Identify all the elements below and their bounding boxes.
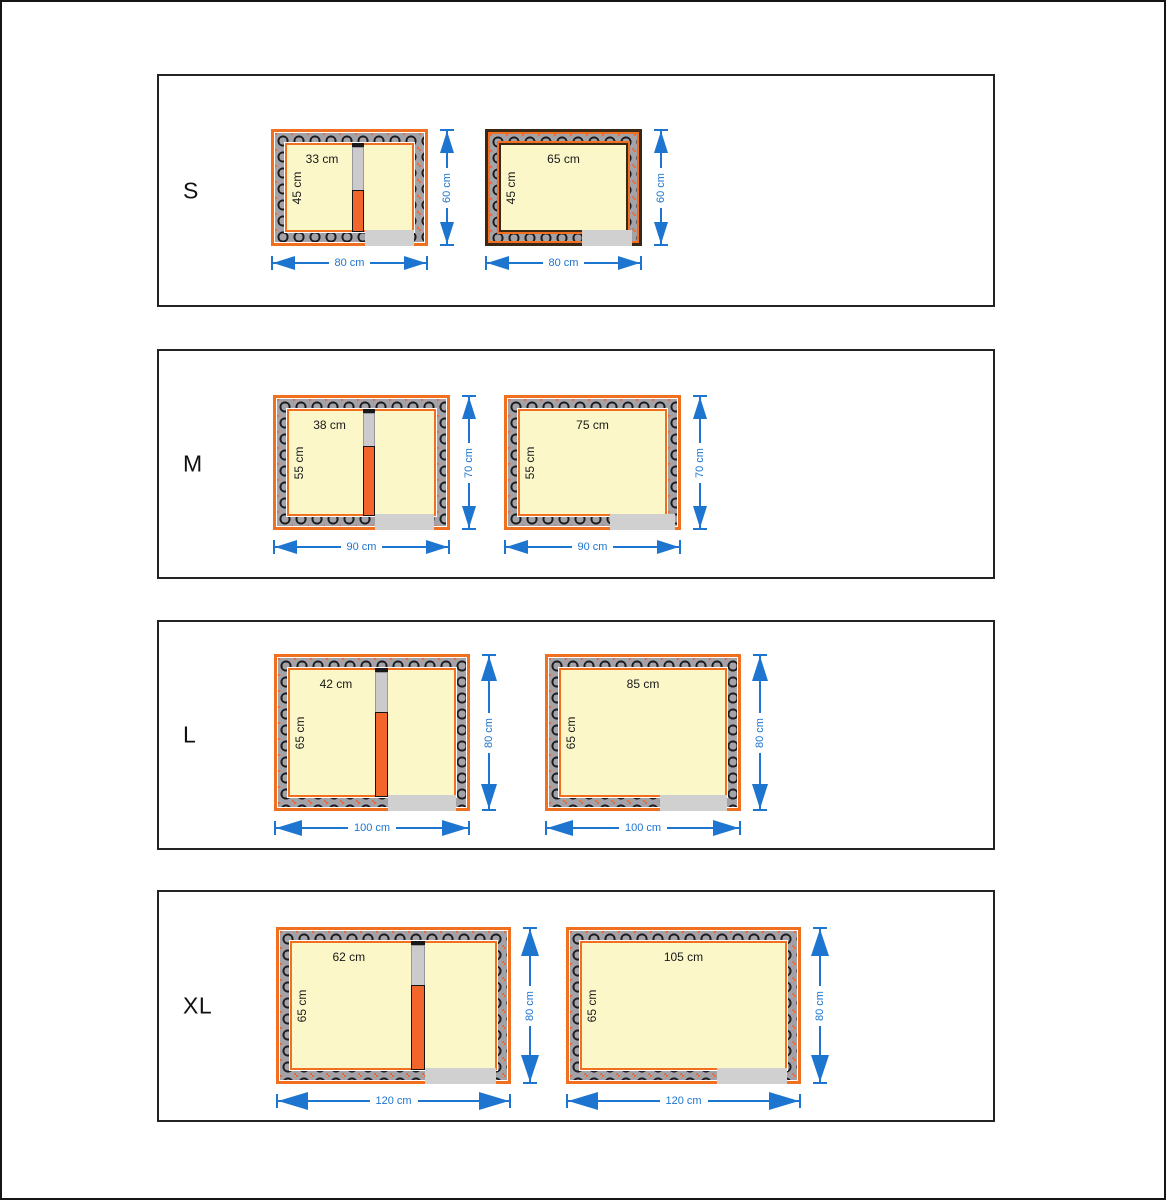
room-interior: 85 cm 65 cm: [559, 668, 727, 797]
width-dimension: 100 cm: [545, 820, 741, 836]
arrow-right-icon: [442, 820, 468, 836]
room-interior: 75 cm 55 cm: [518, 409, 667, 516]
arrow-down-icon: [481, 784, 497, 809]
arrow-down-icon: [521, 1055, 539, 1082]
width-dimension-label: 90 cm: [341, 541, 383, 553]
room-width-label: 33 cm: [306, 152, 339, 166]
dimension-tick: [468, 821, 470, 835]
arrow-right-icon: [426, 540, 448, 554]
width-dimension: 120 cm: [276, 1093, 511, 1109]
partition-orange-segment: [411, 985, 425, 1070]
room-depth-label: 65 cm: [585, 989, 599, 1022]
door-opening: [717, 1068, 787, 1084]
size-label-l: L: [183, 722, 196, 749]
room-depth-label: 65 cm: [293, 716, 307, 749]
partition-gray-segment: [352, 147, 364, 190]
dimension-tick: [679, 540, 681, 554]
height-dimension-label: 80 cm: [814, 986, 826, 1026]
section-size-s: S 33 cm 45 cm 60 cm: [157, 74, 995, 307]
room-width-label: 75 cm: [576, 418, 609, 432]
floor-plan-m-open: 75 cm 55 cm 70 cm 90 cm: [504, 395, 681, 530]
height-dimension: 80 cm: [812, 927, 828, 1084]
dimension-tick: [426, 256, 428, 270]
floor-plan-l-open: 85 cm 65 cm 80 cm 100 cm: [545, 654, 741, 811]
width-dimension-label: 120 cm: [369, 1095, 417, 1107]
dimension-tick: [482, 809, 496, 811]
dimension-tick: [523, 1082, 537, 1084]
arrow-down-icon: [654, 222, 668, 244]
height-dimension-label: 60 cm: [441, 168, 453, 208]
dimension-tick: [448, 540, 450, 554]
height-dimension: 70 cm: [692, 395, 708, 530]
height-dimension-label: 80 cm: [754, 713, 766, 753]
arrow-right-icon: [404, 256, 426, 270]
height-dimension-label: 80 cm: [483, 713, 495, 753]
floor-plan-xl-open: 105 cm 65 cm 80 cm 120 cm: [566, 927, 801, 1084]
room-width-label: 85 cm: [627, 677, 660, 691]
width-dimension-label: 90 cm: [572, 541, 614, 553]
height-dimension: 70 cm: [461, 395, 477, 530]
width-dimension-label: 100 cm: [619, 822, 667, 834]
height-dimension-label: 70 cm: [463, 443, 475, 483]
dimension-tick: [799, 1094, 801, 1108]
arrow-down-icon: [440, 222, 454, 244]
height-dimension: 80 cm: [752, 654, 768, 811]
door-opening: [610, 514, 675, 530]
height-dimension-label: 60 cm: [655, 168, 667, 208]
floor-plan-m-partitioned: 38 cm 55 cm 70 cm 90 cm: [273, 395, 450, 530]
room-width-label: 105 cm: [664, 950, 703, 964]
dimension-tick: [509, 1094, 511, 1108]
room-width-label: 62 cm: [332, 950, 365, 964]
room-interior: 62 cm 65 cm: [290, 941, 497, 1070]
height-dimension-label: 70 cm: [694, 443, 706, 483]
room-width-label: 38 cm: [313, 418, 346, 432]
dimension-tick: [440, 244, 454, 246]
dimension-tick: [739, 821, 741, 835]
partition-wall: [411, 941, 425, 1070]
room-interior: 33 cm 45 cm: [285, 143, 414, 232]
width-dimension-label: 120 cm: [659, 1095, 707, 1107]
arrow-right-icon: [618, 256, 640, 270]
door-opening: [425, 1068, 496, 1084]
partition-gray-segment: [375, 672, 388, 712]
width-dimension: 80 cm: [485, 255, 642, 271]
size-label-s: S: [183, 177, 199, 204]
dimension-tick: [654, 244, 668, 246]
dimension-tick: [693, 528, 707, 530]
size-label-xl: XL: [183, 993, 212, 1020]
section-size-xl: XL 62 cm 65 cm 80 cm: [157, 890, 995, 1122]
height-dimension-label: 80 cm: [524, 986, 536, 1026]
floor-plan-s-partitioned: 33 cm 45 cm 60 cm 80 cm: [271, 129, 428, 246]
arrow-down-icon: [811, 1055, 829, 1082]
partition-orange-segment: [352, 190, 364, 232]
dimension-tick: [640, 256, 642, 270]
partition-orange-segment: [375, 712, 388, 797]
height-dimension: 80 cm: [481, 654, 497, 811]
door-opening: [365, 230, 414, 246]
width-dimension-label: 100 cm: [348, 822, 396, 834]
arrow-right-icon: [713, 820, 739, 836]
arrow-down-icon: [693, 506, 707, 528]
height-dimension: 80 cm: [522, 927, 538, 1084]
width-dimension-label: 80 cm: [543, 257, 585, 269]
width-dimension: 120 cm: [566, 1093, 801, 1109]
floor-plan-s-open: 65 cm 45 cm 60 cm 80 cm: [485, 129, 642, 246]
room-interior: 38 cm 55 cm: [287, 409, 436, 516]
section-size-m: M 38 cm 55 cm 70 cm: [157, 349, 995, 579]
room-depth-label: 55 cm: [523, 446, 537, 479]
room-interior: 42 cm 65 cm: [288, 668, 456, 797]
room-width-label: 65 cm: [547, 152, 580, 166]
door-opening: [582, 230, 632, 246]
room-depth-label: 45 cm: [504, 171, 518, 204]
size-label-m: M: [183, 451, 203, 478]
width-dimension: 90 cm: [273, 539, 450, 555]
room-depth-label: 65 cm: [564, 716, 578, 749]
partition-wall: [375, 668, 388, 797]
height-dimension: 60 cm: [439, 129, 455, 246]
width-dimension-label: 80 cm: [329, 257, 371, 269]
door-opening: [660, 795, 727, 811]
room-interior: 105 cm 65 cm: [580, 941, 787, 1070]
height-dimension: 60 cm: [653, 129, 669, 246]
room-depth-label: 65 cm: [295, 989, 309, 1022]
dimension-tick: [462, 528, 476, 530]
room-width-label: 42 cm: [320, 677, 353, 691]
width-dimension: 90 cm: [504, 539, 681, 555]
dimension-tick: [813, 1082, 827, 1084]
partition-orange-segment: [363, 446, 375, 516]
arrow-right-icon: [769, 1092, 799, 1110]
partition-wall: [363, 409, 375, 516]
door-opening: [375, 514, 434, 530]
partition-wall: [352, 143, 364, 232]
arrow-right-icon: [479, 1092, 509, 1110]
door-opening: [388, 795, 456, 811]
partition-gray-segment: [411, 945, 425, 985]
floor-plan-xl-partitioned: 62 cm 65 cm 80 cm 120 cm: [276, 927, 511, 1084]
dimension-tick: [753, 809, 767, 811]
partition-gray-segment: [363, 413, 375, 446]
width-dimension: 80 cm: [271, 255, 428, 271]
section-size-l: L 42 cm 65 cm 80 cm: [157, 620, 995, 850]
arrow-down-icon: [462, 506, 476, 528]
arrow-down-icon: [752, 784, 768, 809]
room-interior: 65 cm 45 cm: [499, 143, 628, 232]
size-chart-diagram: S 33 cm 45 cm 60 cm: [0, 0, 1166, 1200]
room-depth-label: 55 cm: [292, 446, 306, 479]
room-depth-label: 45 cm: [290, 171, 304, 204]
width-dimension: 100 cm: [274, 820, 470, 836]
arrow-right-icon: [657, 540, 679, 554]
floor-plan-l-partitioned: 42 cm 65 cm 80 cm 100 cm: [274, 654, 470, 811]
